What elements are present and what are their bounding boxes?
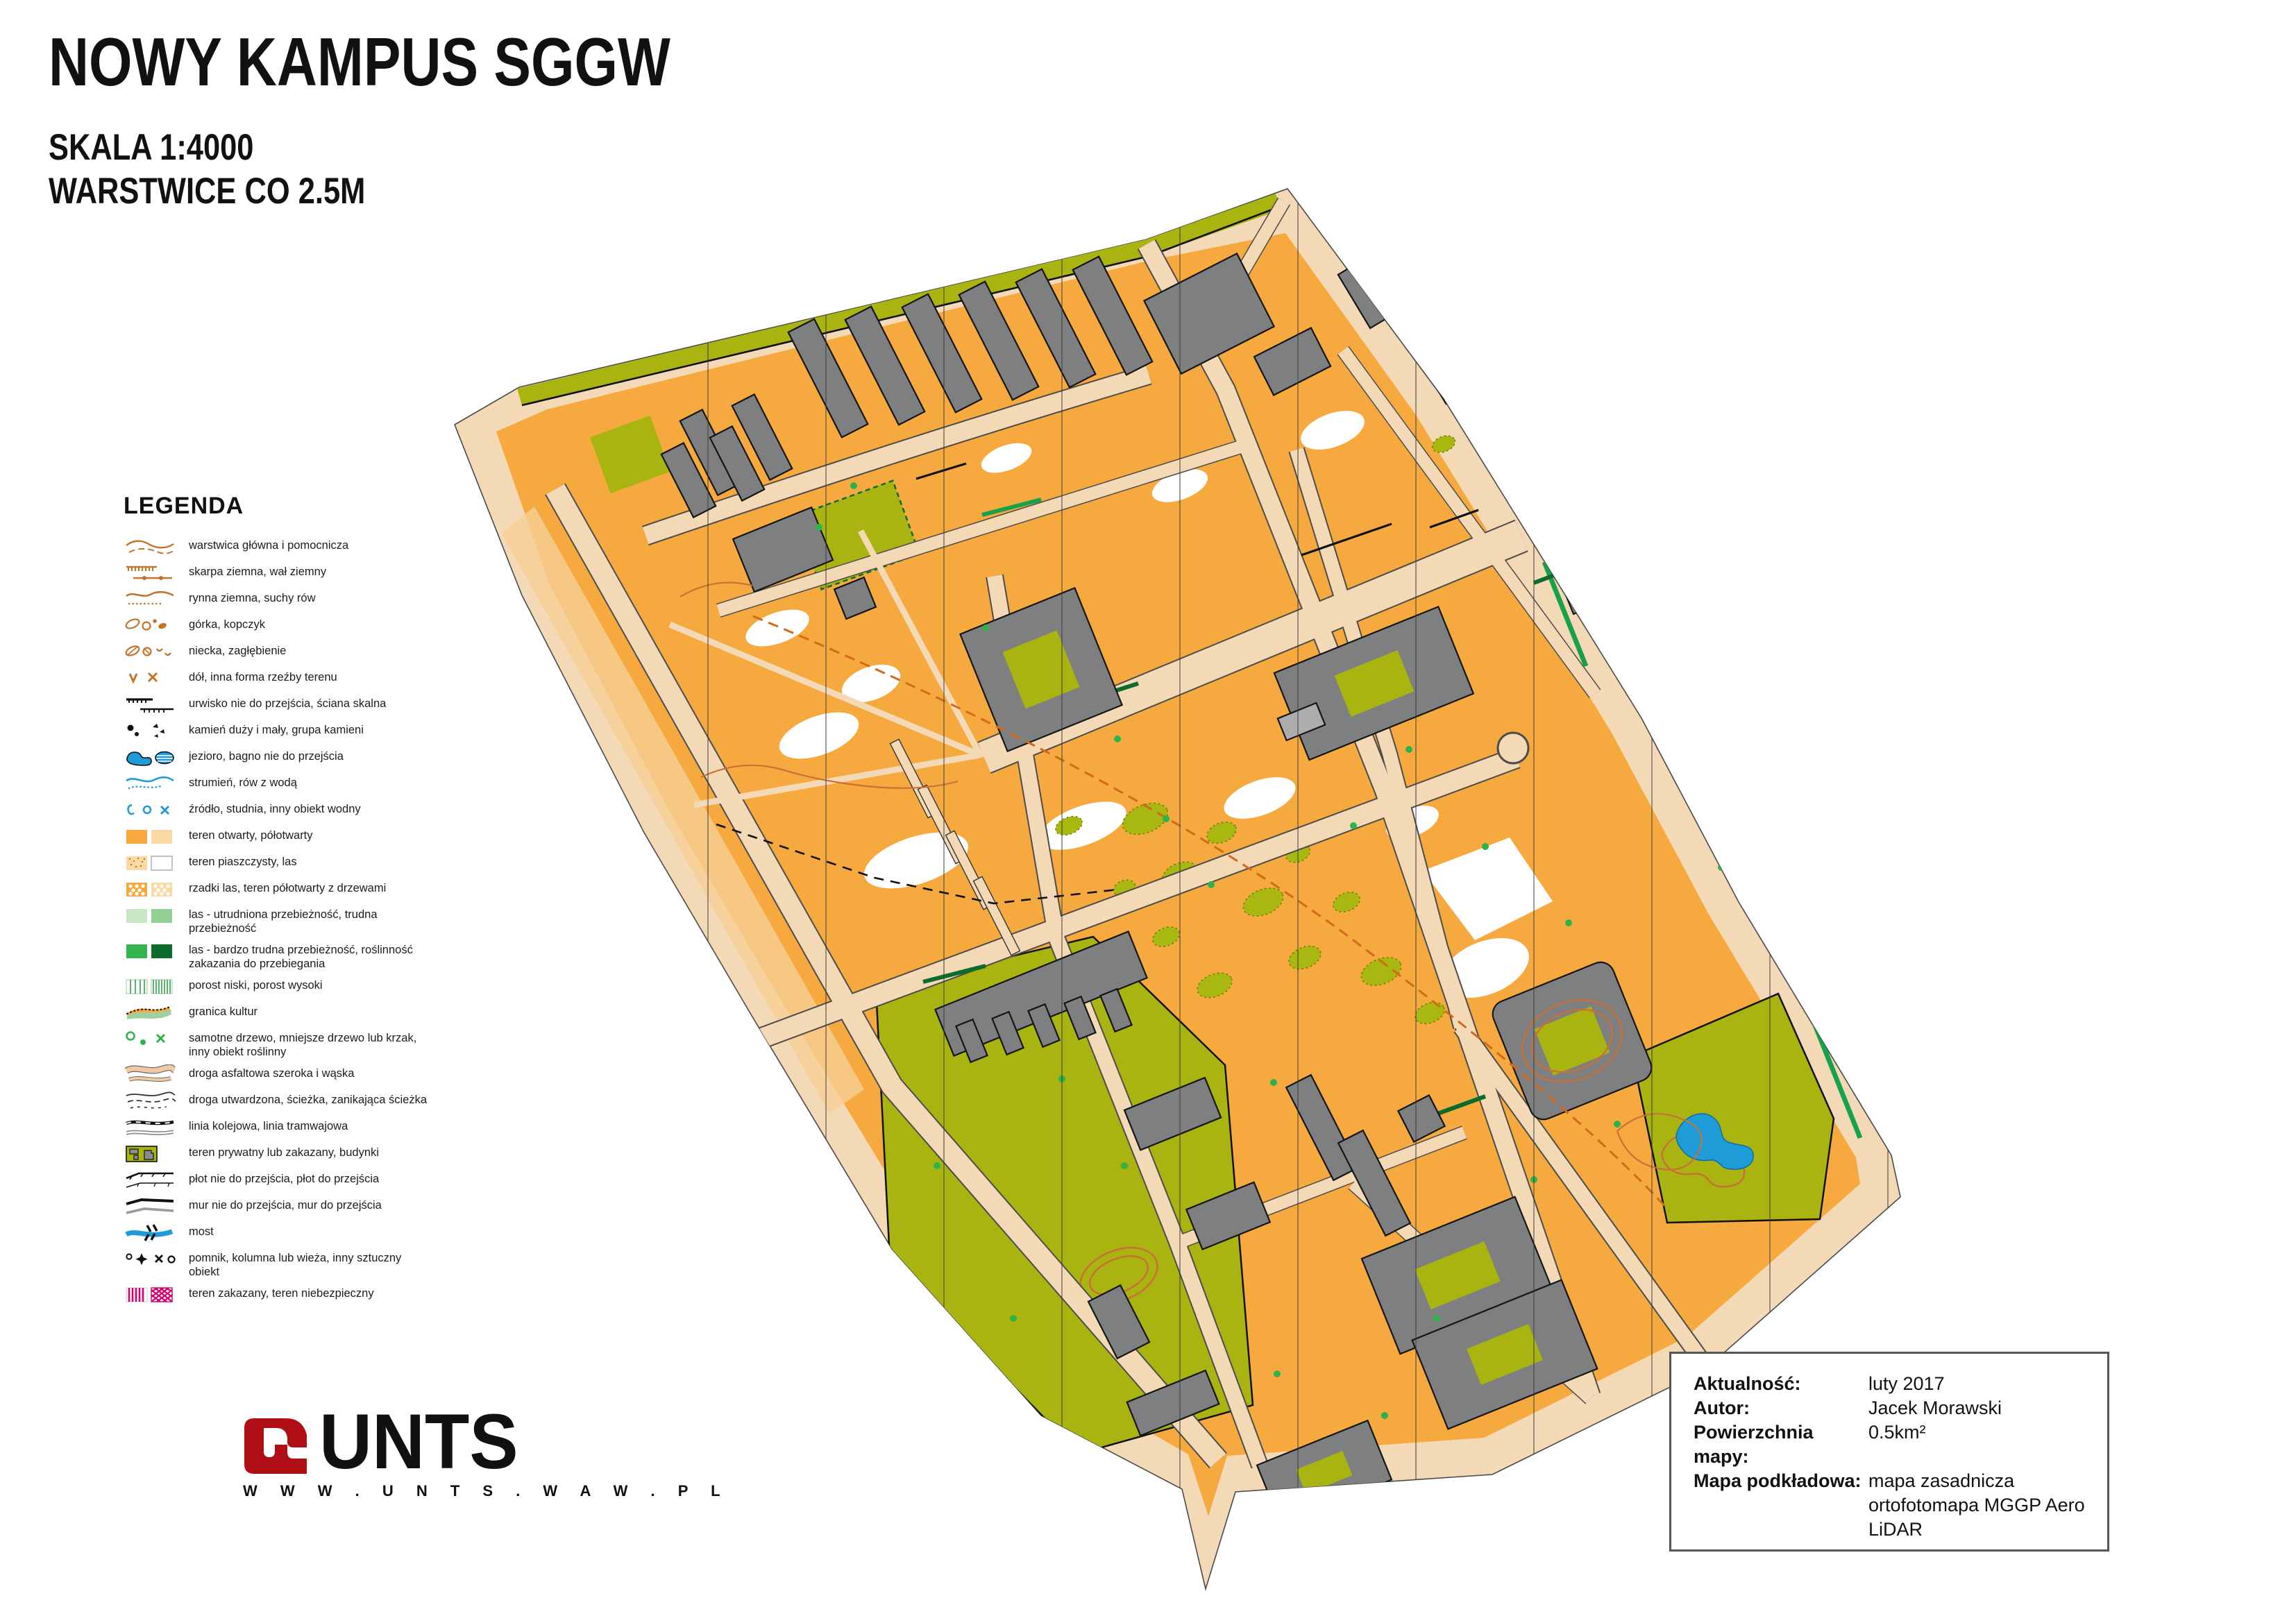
legend-item: pomnik, kolumna lub wieża, inny sztuczny…	[124, 1249, 457, 1279]
legend-item: las - bardzo trudna przebieżność, roślin…	[124, 941, 457, 971]
legend-item: most	[124, 1223, 457, 1243]
legend: LEGENDA warstwica główna i pomocnicza sk…	[124, 493, 457, 1311]
forbidden-area-icon	[124, 1284, 178, 1305]
railway-icon	[124, 1117, 178, 1138]
legend-item: strumień, rów z wodą	[124, 774, 457, 794]
info-box: Aktualność: luty 2017 Autor: Jacek Moraw…	[1669, 1352, 2109, 1552]
scattered-trees-icon	[124, 879, 178, 900]
erosion-gully-icon	[124, 589, 178, 610]
legend-item: dół, inna forma rzeźby terenu	[124, 668, 457, 689]
legend-item: samotne drzewo, mniejsze drzewo lub krza…	[124, 1029, 457, 1059]
boulder-icon	[124, 721, 178, 742]
legend-item: kamień duży i mały, grupa kamieni	[124, 721, 457, 742]
legend-item: linia kolejowa, linia tramwajowa	[124, 1117, 457, 1138]
legend-item: droga asfaltowa szeroka i wąska	[124, 1064, 457, 1085]
legend-item: rzadki las, teren półotwarty z drzewami	[124, 879, 457, 900]
legend-item: teren prywatny lub zakazany, budynki	[124, 1144, 457, 1164]
pit-icon	[124, 668, 178, 689]
info-row: Aktualność: luty 2017	[1694, 1372, 2107, 1396]
logo: UNTS W W W . U N T S . W A W . P L	[243, 1409, 729, 1500]
tree-icon	[124, 1029, 178, 1050]
lake-marsh-icon	[124, 747, 178, 768]
forest-fight-icon	[124, 941, 178, 962]
legend-heading: LEGENDA	[124, 493, 457, 520]
legend-item: jezioro, bagno nie do przejścia	[124, 747, 457, 768]
paved-road-icon	[124, 1064, 178, 1085]
legend-item: niecka, zagłębienie	[124, 642, 457, 663]
open-land-icon	[124, 826, 178, 847]
bridge-icon	[124, 1223, 178, 1243]
earth-bank-icon	[124, 563, 178, 584]
logo-wordmark: UNTS	[319, 1409, 518, 1475]
legend-item: mur nie do przejścia, mur do przejścia	[124, 1196, 457, 1217]
stream-icon	[124, 774, 178, 794]
map-scale: SKALA 1:4000	[49, 126, 670, 170]
legend-item: górka, kopczyk	[124, 615, 457, 636]
vegetation-strip-icon	[124, 976, 178, 997]
legend-item: urwisko nie do przejścia, ściana skalna	[124, 695, 457, 715]
cliff-icon	[124, 695, 178, 715]
legend-item: droga utwardzona, ścieżka, zanikająca śc…	[124, 1091, 457, 1112]
unts-logo-mark	[243, 1417, 310, 1475]
sandy-ground-icon	[124, 853, 178, 874]
private-area-icon	[124, 1144, 178, 1164]
depression-icon	[124, 642, 178, 663]
legend-item: warstwica główna i pomocnicza	[124, 536, 457, 557]
info-row: Powierzchnia mapy: 0.5km²	[1694, 1420, 2107, 1469]
info-row: Autor: Jacek Morawski	[1694, 1396, 2107, 1420]
footpath-icon	[124, 1091, 178, 1112]
water-feature-icon	[124, 800, 178, 821]
wall-icon	[124, 1196, 178, 1217]
page-title: NOWY KAMPUS SGGW	[49, 28, 670, 96]
legend-item: płot nie do przejścia, płot do przejścia	[124, 1170, 457, 1191]
title-block: NOWY KAMPUS SGGW SKALA 1:4000 WARSTWICE …	[49, 28, 807, 213]
map-contour-interval: WARSTWICE CO 2.5M	[49, 170, 670, 214]
knoll-icon	[124, 615, 178, 636]
legend-item: źródło, studnia, inny obiekt wodny	[124, 800, 457, 821]
legend-item: rynna ziemna, suchy rów	[124, 589, 457, 610]
legend-item: las - utrudniona przebieżność, trudna pr…	[124, 906, 457, 935]
logo-url: W W W . U N T S . W A W . P L	[243, 1482, 729, 1500]
legend-item: teren otwarty, półotwarty	[124, 826, 457, 847]
legend-item: granica kultur	[124, 1003, 457, 1023]
contour-icon	[124, 536, 178, 557]
info-row: Mapa podkładowa: mapa zasadnicza ortofot…	[1694, 1469, 2107, 1542]
legend-item: skarpa ziemna, wał ziemny	[124, 563, 457, 584]
fence-icon	[124, 1170, 178, 1191]
cultivation-boundary-icon	[124, 1003, 178, 1023]
legend-item: porost niski, porost wysoki	[124, 976, 457, 997]
page: { "title": { "main": "NOWY KAMPUS SGGW",…	[0, 0, 2296, 1623]
legend-item: teren piaszczysty, las	[124, 853, 457, 874]
legend-item: teren zakazany, teren niebezpieczny	[124, 1284, 457, 1305]
monument-icon	[124, 1249, 178, 1270]
forest-slow-icon	[124, 906, 178, 926]
